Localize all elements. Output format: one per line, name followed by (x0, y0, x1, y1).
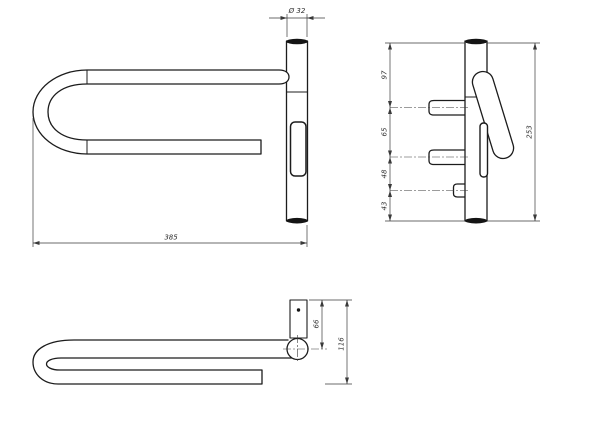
dim-depth-arrow-bottom (345, 378, 349, 385)
top-u-handle-outline (33, 340, 293, 384)
dim-length-arrow-right (301, 241, 308, 245)
dim-diameter-arrow-right (307, 16, 314, 20)
dim-offset-arrow-top (320, 300, 324, 307)
dim-seg-lower-mid-label: 48 (381, 169, 389, 178)
dim-diameter-label: Ø 32 (288, 7, 306, 15)
side-view: 97 65 48 43 253 (381, 39, 541, 224)
top-wall-plate (290, 300, 307, 338)
dim-seg-top-label: 97 (381, 70, 389, 79)
dim-offset-arrow-bottom (320, 343, 324, 350)
front-post-top-cap (286, 39, 307, 45)
dim-depth-arrow-top (345, 300, 349, 307)
dim-seg-upper-mid-label: 65 (381, 127, 389, 136)
dim-overall-height-label: 253 (526, 125, 534, 138)
dim-diameter-arrow-left (281, 16, 288, 20)
dim-overall-depth-label: 116 (338, 337, 346, 351)
dim-chain-arrow-1 (388, 43, 392, 50)
technical-drawing-canvas: Ø 32 385 97 (0, 0, 600, 424)
side-post-top-cap (465, 39, 487, 45)
dim-height-arrow-bottom (533, 215, 537, 222)
top-screw-hole (297, 308, 300, 311)
side-post-bottom-cap (465, 218, 487, 224)
dim-seg-bottom-label: 43 (381, 202, 389, 211)
front-post-bottom-cap (286, 218, 307, 224)
dim-length-label: 385 (164, 234, 178, 242)
dim-chain-arrow-5 (388, 215, 392, 222)
front-u-handle-outline (33, 70, 289, 154)
top-view: 66 116 (33, 300, 352, 384)
side-latch-plate-edge (480, 123, 488, 177)
dim-length-arrow-left (33, 241, 40, 245)
front-view: Ø 32 385 (33, 7, 325, 247)
front-post-latch-plate (291, 122, 307, 176)
dim-height-arrow-top (533, 43, 537, 50)
drawing-sheet: Ø 32 385 97 (0, 0, 600, 424)
dim-plate-to-center-label: 66 (313, 319, 321, 328)
